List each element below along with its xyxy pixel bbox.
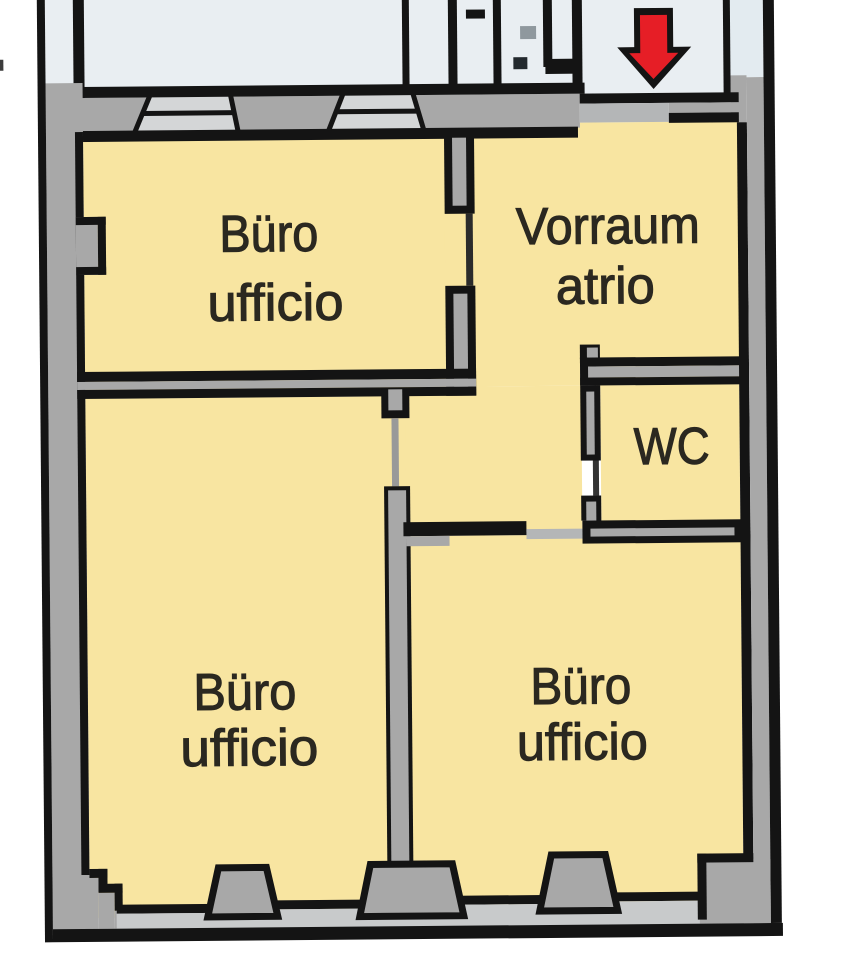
svg-text:ufficio: ufficio	[180, 719, 319, 778]
svg-text:ufficio: ufficio	[207, 274, 344, 333]
svg-text:Büro: Büro	[530, 657, 632, 716]
svg-text:Vorraum: Vorraum	[516, 197, 700, 257]
svg-text:atrio: atrio	[556, 257, 656, 316]
svg-text:Büro: Büro	[193, 663, 297, 722]
svg-text:Büro: Büro	[219, 205, 319, 264]
svg-text:WC: WC	[633, 418, 710, 477]
svg-text:ufficio: ufficio	[517, 713, 649, 772]
